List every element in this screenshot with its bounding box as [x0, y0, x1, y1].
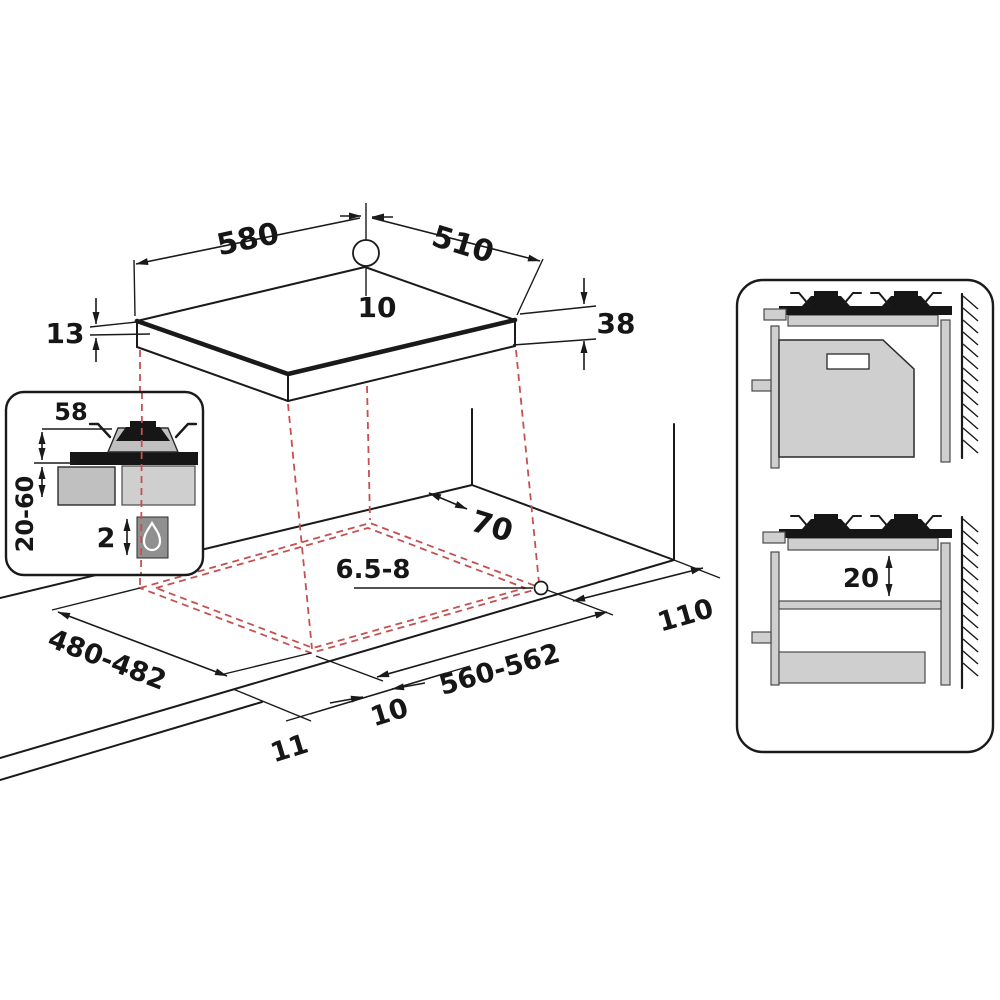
double-arrow: [429, 493, 467, 509]
dim-top-depth-label: 510: [428, 219, 498, 271]
dim-cutout-depth-label: 480-482: [44, 623, 171, 696]
glass-lip-line-lower: [90, 334, 150, 335]
hole-position-circle: [353, 240, 379, 266]
left-rail: [771, 552, 779, 685]
extension-line: [134, 260, 135, 316]
hob-glass-bar: [779, 306, 952, 315]
inset-detail: 58 20-60 2: [6, 392, 203, 575]
projection-right: [516, 350, 539, 583]
dim-front-edge-label: 11: [267, 729, 312, 770]
dim-hole-offset-label: 10: [358, 291, 397, 324]
projection-front: [288, 404, 312, 649]
hob-top-view: [90, 267, 515, 401]
installation-diagram: 580 510 10 13 38 70 6.5-8 480-48: [0, 0, 1000, 1000]
worktop-section: [58, 467, 115, 505]
dim-shelf-clearance-label: 20: [843, 564, 879, 594]
hob-glass-top-face: [137, 267, 515, 374]
dim-build-in-height-label: 38: [597, 307, 636, 340]
hob-glass-section: [70, 452, 198, 465]
glass-lip-line-upper: [90, 322, 137, 327]
gas-connection-hole: [535, 582, 548, 595]
fixing-bracket: [752, 632, 771, 643]
dim-hole-diameter-label: 6.5-8: [336, 555, 411, 585]
separator-shelf: [779, 601, 941, 609]
dim-build-in-height: 38: [513, 278, 635, 370]
extension-line: [517, 259, 543, 315]
left-rail: [771, 326, 779, 468]
projection-back: [367, 386, 370, 520]
dim-front-edge: 11: [233, 689, 312, 769]
side-view-panel: 20: [737, 280, 993, 752]
dim-rear-clearance: 70: [429, 493, 517, 550]
dim-cutout-depth: 480-482: [44, 588, 311, 697]
leader-line: [233, 689, 311, 721]
hob-glass-bar: [779, 529, 952, 538]
dim-right-clearance-label: 110: [654, 593, 717, 638]
hob-underside: [788, 315, 938, 326]
gap-line-lower: [286, 673, 446, 721]
right-rail: [941, 543, 950, 685]
fixing-bracket: [764, 309, 786, 320]
dim-front-gap-label: 10: [367, 693, 412, 734]
right-rail: [941, 320, 950, 462]
fixing-bracket: [763, 532, 785, 543]
drawer-front: [779, 652, 925, 683]
extension-upper: [520, 306, 596, 314]
burner-cap-top: [130, 421, 156, 428]
extension-from-front-corner: [316, 656, 383, 681]
dim-support-height-label: 58: [54, 398, 87, 426]
dim-top-width-label: 580: [214, 216, 283, 263]
installation-diagram-page: 580 510 10 13 38 70 6.5-8 480-48: [0, 0, 1000, 1000]
dim-worktop-thickness-label: 20-60: [11, 476, 39, 553]
oven-vent: [827, 354, 869, 369]
dim-hole-diameter: 6.5-8: [336, 555, 533, 588]
dim-glass-thickness-label: 13: [46, 317, 85, 350]
dim-rear-clearance-label: 70: [467, 504, 517, 550]
hob-body-section: [122, 466, 195, 505]
dim-right-clearance: 110: [573, 560, 720, 638]
extension-from-front-corner: [220, 653, 311, 675]
hob-underside: [788, 538, 938, 550]
worktop-front-thickness-edge: [0, 702, 262, 780]
dim-bottom-gap-label: 2: [97, 523, 116, 554]
dim-cutout-width: 560-562: [316, 590, 613, 702]
dim-glass-thickness: 13: [46, 298, 96, 362]
fixing-bracket: [752, 380, 771, 391]
extension-from-left-corner: [52, 588, 140, 610]
